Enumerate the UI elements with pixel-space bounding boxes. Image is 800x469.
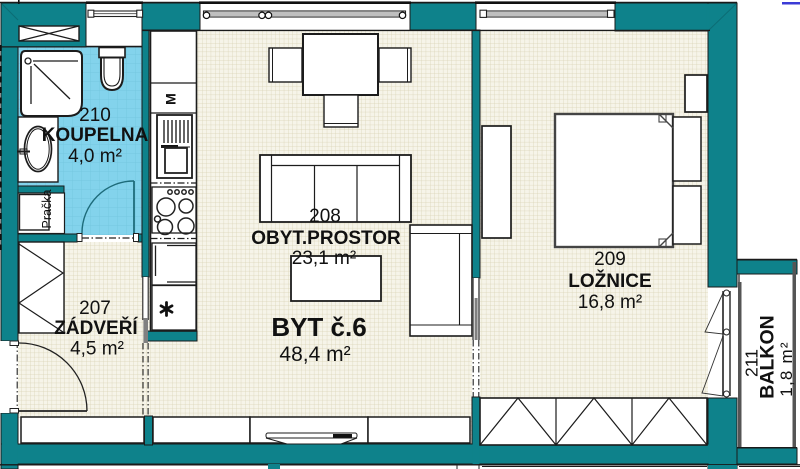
- svg-text:4,5 m²: 4,5 m²: [70, 339, 124, 360]
- svg-text:23,1 m²: 23,1 m²: [292, 248, 356, 269]
- svg-text:BALKON: BALKON: [757, 315, 779, 398]
- svg-text:16,8 m²: 16,8 m²: [578, 292, 642, 313]
- svg-text:209: 209: [594, 249, 626, 270]
- svg-text:Pračka: Pračka: [40, 190, 54, 229]
- svg-text:208: 208: [309, 206, 341, 227]
- svg-text:48,4 m²: 48,4 m²: [279, 343, 350, 366]
- svg-text:ZÁDVEŘÍ: ZÁDVEŘÍ: [54, 317, 138, 339]
- svg-text:207: 207: [79, 298, 111, 319]
- svg-text:LOŽNICE: LOŽNICE: [568, 270, 651, 292]
- svg-text:BYT č.6: BYT č.6: [271, 312, 366, 342]
- svg-text:4,0 m²: 4,0 m²: [68, 146, 122, 167]
- svg-text:OBYT.PROSTOR: OBYT.PROSTOR: [251, 228, 401, 249]
- svg-text:210: 210: [79, 105, 111, 126]
- svg-text:M: M: [163, 93, 179, 105]
- svg-text:1,8 m²: 1,8 m²: [777, 341, 796, 396]
- svg-text:KOUPELNA: KOUPELNA: [42, 125, 149, 146]
